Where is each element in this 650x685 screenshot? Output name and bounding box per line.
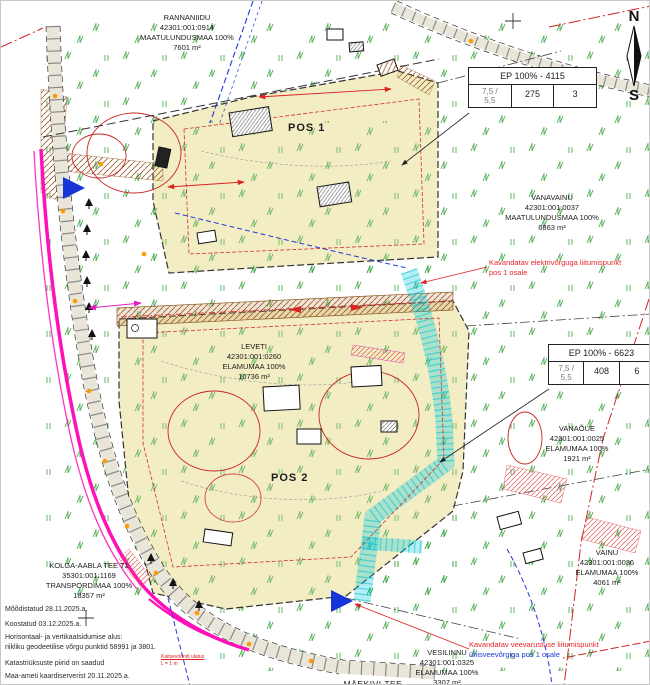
parcel-use: MAATULUNDUSMAA 100%: [140, 33, 234, 43]
parcel-name: VANAVAINU: [505, 193, 599, 203]
parcel-use: TRANSPORDIMAA 100%: [46, 581, 132, 591]
parcel-label-rannaniidu: RANNANIIDU 42301:001:0914 MAATULUNDUSMAA…: [140, 13, 234, 53]
note-water-connection: Kavandatav veevarustuse liitumispunkt üh…: [469, 640, 599, 660]
height-limit-line2: 5,5: [549, 373, 583, 382]
parcel-label-vanavainu: VANAVAINU 42301:001:0037 MAATULUNDUSMAA …: [505, 193, 599, 233]
parcel-area: 7601 m²: [140, 43, 234, 53]
table-ep-4115-area-cell: 275: [512, 85, 555, 107]
parcel-name: KOLGA-AABLA TEE T1: [46, 561, 132, 571]
parcel-label-vanaoue: VANAÕUE 42301:001:0025 ELAMUMAA 100% 192…: [546, 424, 609, 464]
parcel-area: 1921 m²: [546, 454, 609, 464]
parcel-code: 42301:001:0914: [140, 23, 234, 33]
survey-note-compiled: Koostatud 03.12.2025.a.: [5, 621, 81, 628]
note-line: Kavandatav elektrivõrguga liitumispunkt: [489, 258, 621, 268]
survey-note-cadastre-2: Maa-ameti kaardiserverist 20.11.2025.a.: [5, 673, 130, 680]
parcel-name: VAINU: [576, 548, 639, 558]
site-plan-page: N S EP 100% - 4115 7,5 / 5,5 275 3 EP 10…: [0, 0, 650, 685]
table-ep-4115: EP 100% - 4115 7,5 / 5,5 275 3: [468, 67, 597, 108]
table-ep-6623-header: EP 100% - 6623: [549, 345, 650, 362]
note-line: ühisveevõrgiga pos 1 osale: [469, 650, 599, 660]
note-line: L = 1 m: [161, 661, 178, 667]
survey-note-datum-2: riikliku geodeetilise võrgu punktid 5899…: [5, 644, 156, 651]
table-ep-4115-count-cell: 3: [554, 85, 596, 107]
parcel-code: 42301:001:0036: [576, 558, 639, 568]
survey-note-datum-1: Horisontaal- ja vertikaalsidumise alus:: [5, 634, 123, 641]
height-limit-line1: 7,5 /: [469, 87, 511, 96]
pos1-label: POS 1: [288, 122, 325, 134]
parcel-label-kolga: KOLGA-AABLA TEE T1 35301:001:1169 TRANSP…: [46, 561, 132, 601]
parcel-use: ELAMUMAA 100%: [576, 568, 639, 578]
parcel-code: 42301:001:0025: [546, 434, 609, 444]
note-line: pos 1 osale: [489, 268, 621, 278]
survey-note-cadastre-1: Katastriüksuste piirid on saadud: [5, 660, 104, 667]
compass-north-label: N: [619, 9, 649, 24]
parcel-area: 3307 m²: [416, 678, 479, 685]
note-line: Kaitsevööndi ulatus: [161, 654, 204, 661]
height-limit-line2: 5,5: [469, 96, 511, 105]
table-ep-6623-count-cell: 6: [620, 362, 650, 384]
compass-south-label: S: [619, 88, 649, 103]
parcel-area: 10736 m²: [223, 372, 286, 382]
table-ep-4115-header: EP 100% - 4115: [469, 68, 596, 85]
parcel-area: 6863 m²: [505, 223, 599, 233]
table-ep-4115-height-cell: 7,5 / 5,5: [469, 85, 512, 107]
note-protection-zone: Kaitsevööndi ulatus L = 1 m: [161, 654, 204, 668]
parcel-use: ELAMUMAA 100%: [223, 362, 286, 372]
parcel-label-vainu: VAINU 42301:001:0036 ELAMUMAA 100% 4061 …: [576, 548, 639, 588]
parcel-code: 42301:001:0037: [505, 203, 599, 213]
parcel-name: LEVETI: [223, 342, 286, 352]
parcel-shapes: [119, 71, 469, 609]
parcel-code: 35301:001:1169: [46, 571, 132, 581]
parcel-name: RANNANIIDU: [140, 13, 234, 23]
note-electric-connection: Kavandatav elektrivõrguga liitumispunkt …: [489, 258, 621, 278]
height-limit-line1: 7,5 /: [549, 364, 583, 373]
compass-needle-icon: [625, 25, 643, 87]
parcel-area: 4061 m²: [576, 578, 639, 588]
parcel-label-maekivi: MÄEKIVI TEE: [344, 679, 403, 685]
note-line: Kavandatav veevarustuse liitumispunkt: [469, 640, 599, 650]
parcel-code: 42301:001:0260: [223, 352, 286, 362]
table-ep-6623-height-cell: 7,5 / 5,5: [549, 362, 584, 384]
parcel-use: ELAMUMAA 100%: [416, 668, 479, 678]
survey-note-measured: Mõõdistatud 28.11.2025.a.: [5, 606, 87, 613]
pos2-label: POS 2: [271, 472, 308, 484]
parcel-label-leveti: LEVETI 42301:001:0260 ELAMUMAA 100% 1073…: [223, 342, 286, 382]
parcel-use: MAATULUNDUSMAA 100%: [505, 213, 599, 223]
parcel-use: ELAMUMAA 100%: [546, 444, 609, 454]
north-arrow: N S: [619, 9, 649, 109]
parcel-area: 18357 m²: [46, 591, 132, 601]
parcel-name: VANAÕUE: [546, 424, 609, 434]
table-ep-6623-area-cell: 408: [584, 362, 619, 384]
table-ep-6623: EP 100% - 6623 7,5 / 5,5 408 6: [548, 344, 650, 385]
